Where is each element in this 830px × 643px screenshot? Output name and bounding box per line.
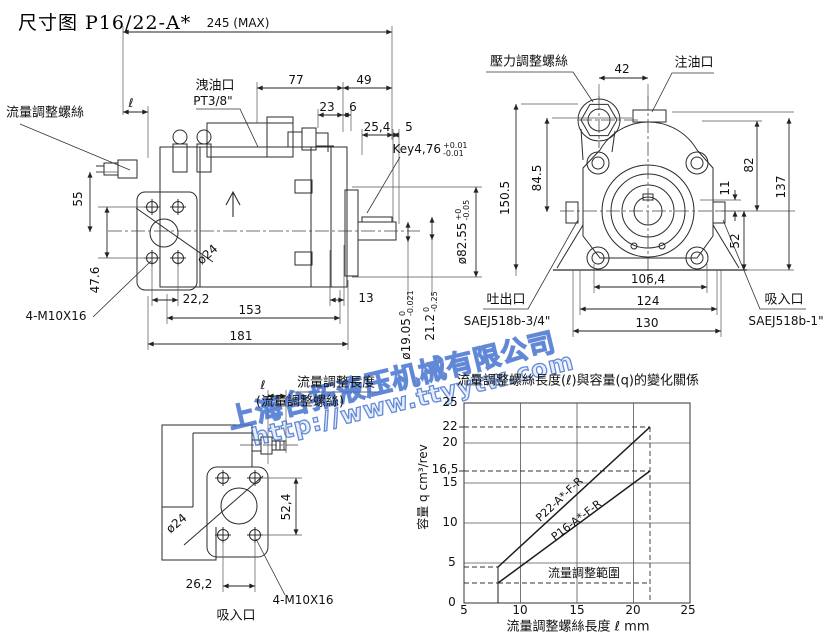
dim-11: 11 <box>719 180 733 195</box>
dim-5: 5 <box>405 121 413 135</box>
xtick-15: 15 <box>569 604 584 618</box>
dim-153: 153 <box>239 304 262 318</box>
key-spec: Key4,76+0.01-0.01 <box>393 142 468 158</box>
ytick-15: 15 <box>442 476 457 490</box>
chart-title: 流量調整螺絲長度(ℓ)與容量(q)的變化關係 <box>457 375 699 390</box>
ytick-10: 10 <box>442 516 457 530</box>
ytick-5: 5 <box>448 556 456 570</box>
flow-adjust-length-label: 流量調整長度 <box>297 377 375 392</box>
xtick-5: 5 <box>460 604 468 618</box>
ytick-22: 22 <box>442 420 457 434</box>
xtick-10: 10 <box>512 604 527 618</box>
dim-124: 124 <box>637 295 660 309</box>
dia82-value: ø82.55 <box>456 223 470 265</box>
dimension-drawing-page: 尺寸图 P16/22-A* 上海台拓液压机械有限公司 http://www.tt… <box>0 0 830 643</box>
key-tolerance: +0.01-0.01 <box>443 142 468 158</box>
dim-13: 13 <box>358 292 373 306</box>
dim-42: 42 <box>614 63 629 77</box>
dim-130: 130 <box>636 317 659 331</box>
dim-47-6: 47.6 <box>89 267 103 294</box>
fill-port-label: 注油口 <box>674 57 713 72</box>
front-view-dimensions <box>516 78 789 331</box>
dim-6: 6 <box>349 101 357 115</box>
bolt-spec-side: 4-M10X16 <box>25 310 86 324</box>
side-view-outline <box>96 117 396 290</box>
dim-106-4: 106,4 <box>631 273 665 287</box>
dim-22-2: 22,2 <box>183 293 210 307</box>
dim-25-4: 25,4 <box>364 121 391 135</box>
dim-23: 23 <box>319 101 334 115</box>
drain-port-label: 洩油口 <box>195 80 234 95</box>
dim-52: 52 <box>729 233 743 248</box>
page-title: 尺寸图 P16/22-A* <box>18 8 191 35</box>
ytick-0: 0 <box>448 596 456 610</box>
dim-55: 55 <box>72 191 86 206</box>
ytick-20: 20 <box>442 436 457 450</box>
dim-84-5: 84.5 <box>531 165 545 192</box>
bolt-spec-top: 4-M10X16 <box>272 594 333 608</box>
dim-ell-top: ℓ <box>261 379 266 393</box>
dim-181: 181 <box>230 330 253 344</box>
flow-adjust-screw-sublabel: (流量調整螺絲) <box>256 396 344 411</box>
dim-dia19-05: ø19.050-0.021 <box>399 290 415 360</box>
drawing-lines <box>0 0 830 643</box>
chart-annotation-range: 流量調整範圍 <box>548 567 620 581</box>
dim-26-2: 26,2 <box>186 578 213 592</box>
flow-screw-label: 流量調整螺絲 <box>6 107 84 122</box>
dia82-tolerance: +0-0.05 <box>455 200 471 221</box>
dim-21-2: 21.20-0.25 <box>423 291 439 340</box>
dim-52-4: 52,4 <box>280 494 294 521</box>
xtick-25: 25 <box>680 604 695 618</box>
d21-2-value: 21.2 <box>424 314 438 341</box>
suction-port-label: 吸入口 <box>216 610 255 625</box>
dim-dia82-55: ø82.55+0-0.05 <box>455 200 471 264</box>
inlet-port-size: SAEJ518b-1" <box>748 315 823 329</box>
outlet-port-label: 吐出口 <box>486 294 525 309</box>
dim-245: 245 (MAX) <box>207 17 270 31</box>
dim-82: 82 <box>743 157 757 172</box>
outlet-port-size: SAEJ518b-3/4" <box>464 315 551 329</box>
dim-77: 77 <box>288 74 303 88</box>
chart-x-axis-label: 流量調整螺絲長度 ℓ mm <box>507 621 650 636</box>
d21-2-tolerance: 0-0.25 <box>423 291 439 312</box>
key-value: Key4,76 <box>393 143 441 157</box>
pressure-screw-label: 壓力調整螺絲 <box>490 56 568 71</box>
drain-port-size: PT3/8" <box>193 95 232 109</box>
dim-ell-side: ℓ <box>129 97 134 111</box>
dia19-tolerance: 0-0.021 <box>399 290 415 316</box>
chart-y-axis-label: 容量 q cm³/rev <box>417 444 431 530</box>
dim-137: 137 <box>775 176 789 199</box>
dim-150-5: 150.5 <box>499 181 513 215</box>
xtick-20: 20 <box>625 604 640 618</box>
dia19-value: ø19.05 <box>400 318 414 360</box>
dim-49: 49 <box>356 74 371 88</box>
inlet-port-label: 吸入口 <box>764 294 803 309</box>
ytick-25: 25 <box>442 396 457 410</box>
